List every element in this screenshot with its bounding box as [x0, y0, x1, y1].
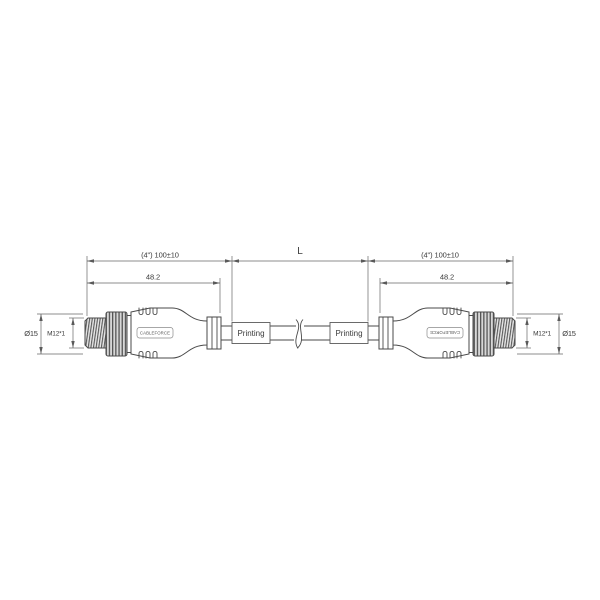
- collar-left: [127, 316, 131, 353]
- brand-label-left: CABLEFORCE: [137, 328, 173, 339]
- dimension-body-left: 48.2: [146, 273, 160, 282]
- knurl-nut-right: [473, 312, 494, 356]
- collar-right: [469, 316, 473, 353]
- left-connector: CABLEFORCE: [85, 308, 221, 359]
- thread-left: [85, 318, 106, 348]
- dimension-overall-left: (4") 100±10: [141, 251, 179, 260]
- knurl-nut-left: [106, 312, 127, 356]
- dimension-diameter-right: Ø15: [562, 329, 576, 338]
- dimension-overall-right: (4") 100±10: [421, 251, 459, 260]
- strain-relief-right: [379, 317, 393, 349]
- thread-right: [494, 318, 515, 348]
- strain-relief-left: [207, 317, 221, 349]
- brand-text-right: CABLEFORCE: [430, 330, 460, 335]
- brand-text-left: CABLEFORCE: [140, 330, 170, 335]
- dimension-thread-left: M12*1: [47, 331, 65, 338]
- dimension-thread-right: M12*1: [533, 331, 551, 338]
- printing-text-right: Printing: [335, 329, 362, 338]
- printing-label-left: Printing: [232, 323, 270, 344]
- printing-text-left: Printing: [237, 329, 264, 338]
- drawing-page: CABLEFORCE CABLEFORCE Printing Printing: [0, 0, 600, 600]
- cable-break-icon: [296, 320, 303, 349]
- right-connector: CABLEFORCE: [379, 308, 515, 359]
- technical-drawing-svg: CABLEFORCE CABLEFORCE Printing Printing: [0, 0, 600, 600]
- dimension-cable-length: L: [297, 246, 303, 257]
- dimension-body-right: 48.2: [440, 273, 454, 282]
- brand-label-right: CABLEFORCE: [427, 328, 463, 339]
- dimension-diameter-left: Ø15: [24, 329, 38, 338]
- printing-label-right: Printing: [330, 323, 368, 344]
